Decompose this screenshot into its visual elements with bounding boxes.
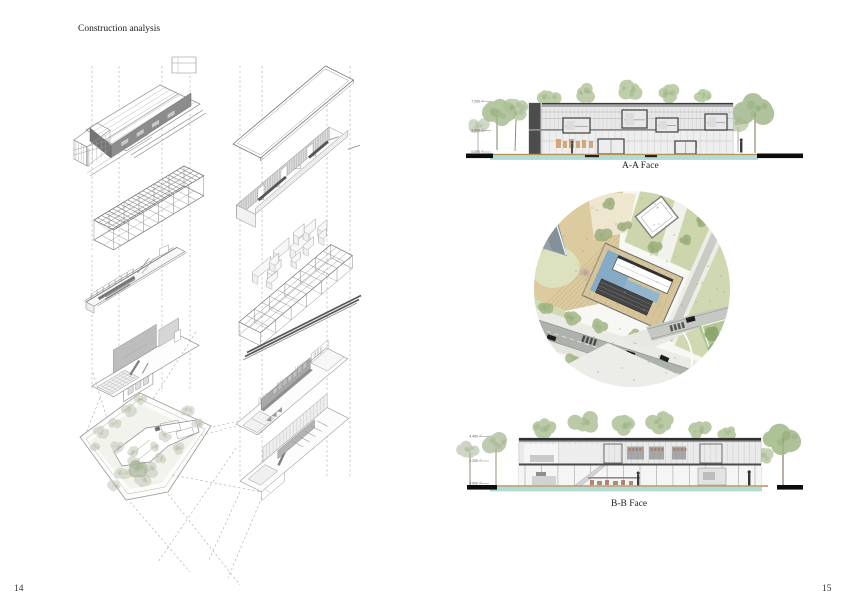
svg-text:4.400: 4.400 — [469, 435, 478, 439]
svg-text:0.000: 0.000 — [469, 482, 478, 486]
svg-text:B-B Face: B-B Face — [611, 499, 647, 509]
svg-text:3.600: 3.600 — [471, 129, 480, 133]
svg-text:7.200: 7.200 — [471, 100, 480, 104]
svg-text:15: 15 — [822, 584, 832, 594]
svg-text:2.200: 2.200 — [469, 459, 478, 463]
svg-text:0.000: 0.000 — [471, 150, 480, 154]
svg-text:14: 14 — [14, 584, 24, 594]
svg-text:A-A Face: A-A Face — [622, 161, 659, 171]
svg-text:Construction analysis: Construction analysis — [78, 24, 160, 34]
